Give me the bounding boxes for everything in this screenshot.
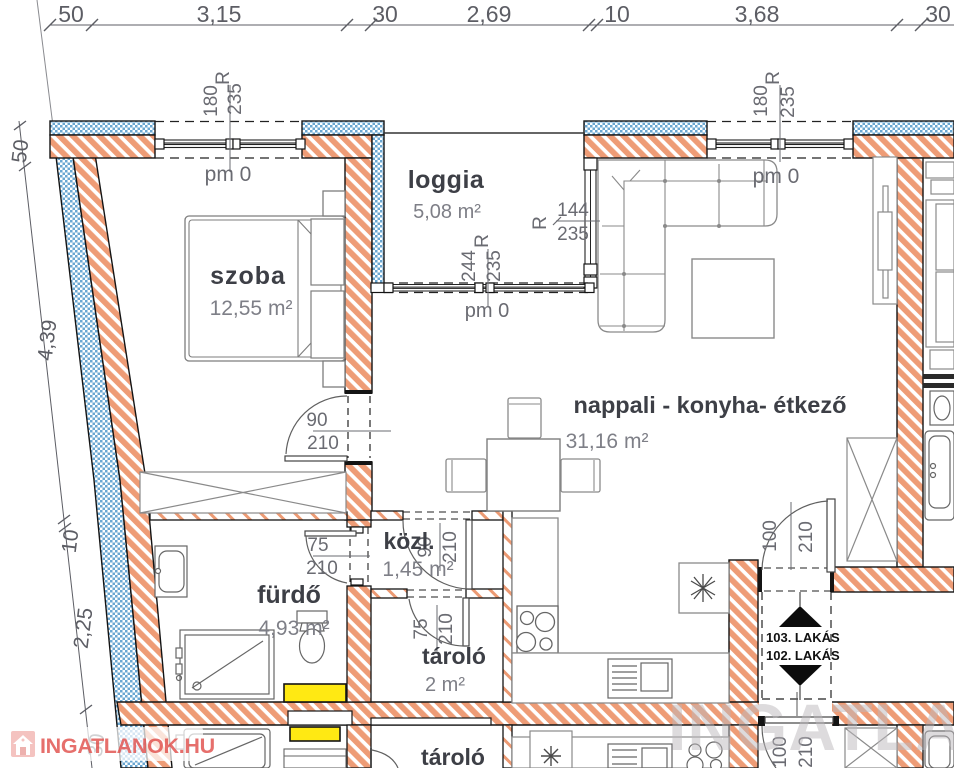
svg-text:INGATLANOK.HU: INGATLANOK.HU [668, 690, 954, 764]
svg-text:210: 210 [796, 521, 817, 553]
svg-text:2 m²: 2 m² [425, 674, 465, 696]
svg-text:75: 75 [411, 618, 432, 639]
svg-text:nappali - konyha- étkező: nappali - konyha- étkező [574, 392, 847, 418]
svg-text:tároló: tároló [422, 643, 486, 669]
svg-text:180: 180 [201, 85, 222, 117]
svg-text:50: 50 [8, 138, 34, 164]
svg-text:30: 30 [925, 1, 951, 27]
svg-text:100: 100 [760, 520, 781, 552]
svg-text:R: R [763, 71, 784, 85]
svg-text:210: 210 [436, 613, 457, 645]
svg-text:10: 10 [604, 1, 630, 27]
svg-text:3,68: 3,68 [735, 1, 780, 27]
svg-text:pm 0: pm 0 [465, 300, 509, 322]
svg-text:235: 235 [557, 224, 589, 245]
svg-text:180: 180 [751, 85, 772, 117]
svg-text:tároló: tároló [421, 744, 485, 768]
svg-text:INGATLANOK.HU: INGATLANOK.HU [40, 734, 215, 758]
svg-text:R: R [530, 216, 551, 230]
svg-text:210: 210 [307, 433, 339, 454]
svg-text:12,55 m²: 12,55 m² [210, 297, 293, 320]
svg-text:5,08 m²: 5,08 m² [413, 201, 481, 223]
svg-text:235: 235 [484, 250, 505, 282]
svg-text:1,45 m²: 1,45 m² [382, 558, 453, 581]
svg-text:4,93 m²: 4,93 m² [258, 617, 329, 640]
svg-text:235: 235 [225, 83, 246, 115]
svg-text:144: 144 [557, 200, 589, 221]
svg-text:pm 0: pm 0 [205, 163, 252, 186]
svg-text:fürdő: fürdő [257, 581, 321, 609]
svg-text:90: 90 [306, 410, 327, 431]
svg-text:R: R [472, 234, 493, 248]
svg-text:3,15: 3,15 [197, 1, 242, 27]
svg-text:75: 75 [307, 535, 328, 556]
svg-text:50: 50 [58, 1, 84, 27]
svg-text:30: 30 [372, 1, 398, 27]
svg-text:103. LAKÁS: 103. LAKÁS [766, 630, 840, 645]
svg-text:2,69: 2,69 [467, 1, 512, 27]
svg-text:R: R [213, 71, 234, 85]
svg-text:244: 244 [459, 250, 480, 282]
svg-text:loggia: loggia [408, 166, 485, 194]
svg-text:szoba: szoba [210, 262, 286, 290]
svg-text:10: 10 [58, 528, 84, 554]
svg-text:31,16 m²: 31,16 m² [566, 430, 649, 453]
svg-text:102. LAKÁS: 102. LAKÁS [766, 648, 840, 663]
svg-text:közl.: közl. [383, 528, 434, 554]
svg-text:210: 210 [306, 558, 338, 579]
svg-text:235: 235 [778, 86, 799, 118]
svg-text:pm 0: pm 0 [753, 165, 800, 188]
